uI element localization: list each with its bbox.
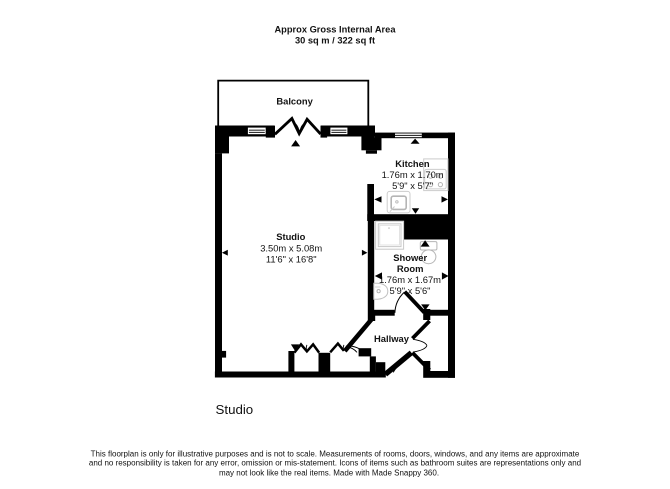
svg-text:1.76m x 1.67m: 1.76m x 1.67m [379,274,441,285]
svg-text:1.76m x 1.70m: 1.76m x 1.70m [382,169,444,180]
svg-text:3.50m x 5.08m: 3.50m x 5.08m [260,243,322,254]
svg-text:5'9" x 5'6": 5'9" x 5'6" [390,285,431,296]
svg-text:5'9" x 5'7": 5'9" x 5'7" [392,180,433,191]
svg-text:and no responsibility is taken: and no responsibility is taken for any e… [89,459,581,468]
svg-text:Balcony: Balcony [276,95,313,106]
svg-text:Studio: Studio [216,402,254,417]
svg-text:Room: Room [397,263,424,274]
svg-text:Shower: Shower [393,252,427,263]
svg-text:30 sq m / 322 sq ft: 30 sq m / 322 sq ft [295,35,375,45]
svg-text:Kitchen: Kitchen [395,158,430,169]
svg-text:may not look like the real ite: may not look like the real items. Made w… [219,469,439,478]
svg-text:Approx Gross Internal Area: Approx Gross Internal Area [274,25,396,35]
svg-text:11'6" x 16'8": 11'6" x 16'8" [266,253,317,264]
svg-text:Studio: Studio [276,231,305,242]
svg-text:This floorplan is only for ill: This floorplan is only for illustrative … [91,449,580,458]
svg-text:Hallway: Hallway [374,333,410,344]
